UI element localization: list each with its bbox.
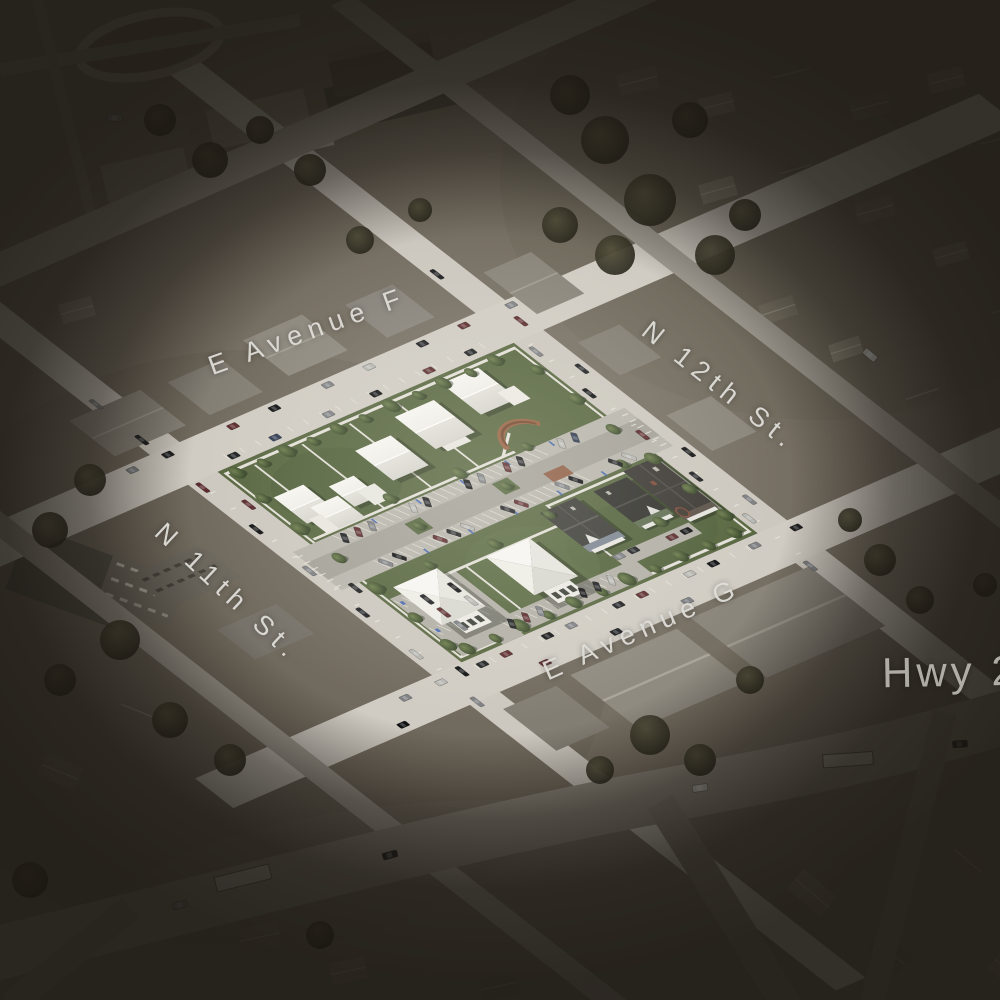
tree (672, 102, 708, 138)
tree (346, 226, 374, 254)
tree (152, 702, 188, 738)
tree (586, 756, 614, 784)
tree (581, 116, 629, 164)
tree (246, 116, 274, 144)
car (108, 115, 123, 122)
tree (74, 464, 106, 496)
tree (630, 715, 670, 755)
tree (214, 744, 246, 776)
tree (32, 512, 68, 548)
tree (595, 235, 635, 275)
tree (864, 544, 896, 576)
tree (542, 207, 578, 243)
aerial-scene (0, 0, 1000, 1000)
aerial-site-rendering: E Avenue F N 12th St. N 11th St. E Avenu… (0, 0, 1000, 1000)
tree (695, 235, 735, 275)
tree (624, 174, 676, 226)
tree (838, 508, 862, 532)
tree (144, 104, 176, 136)
tree (906, 586, 934, 614)
tree (44, 664, 76, 696)
tree (408, 198, 432, 222)
tree (192, 142, 228, 178)
tree (973, 573, 997, 597)
tree (294, 154, 326, 186)
car (952, 740, 967, 748)
tree (550, 75, 590, 115)
tree (729, 199, 761, 231)
tree (684, 744, 716, 776)
tree (306, 921, 334, 949)
tree (100, 620, 140, 660)
tree (12, 862, 48, 898)
tree (736, 666, 764, 694)
